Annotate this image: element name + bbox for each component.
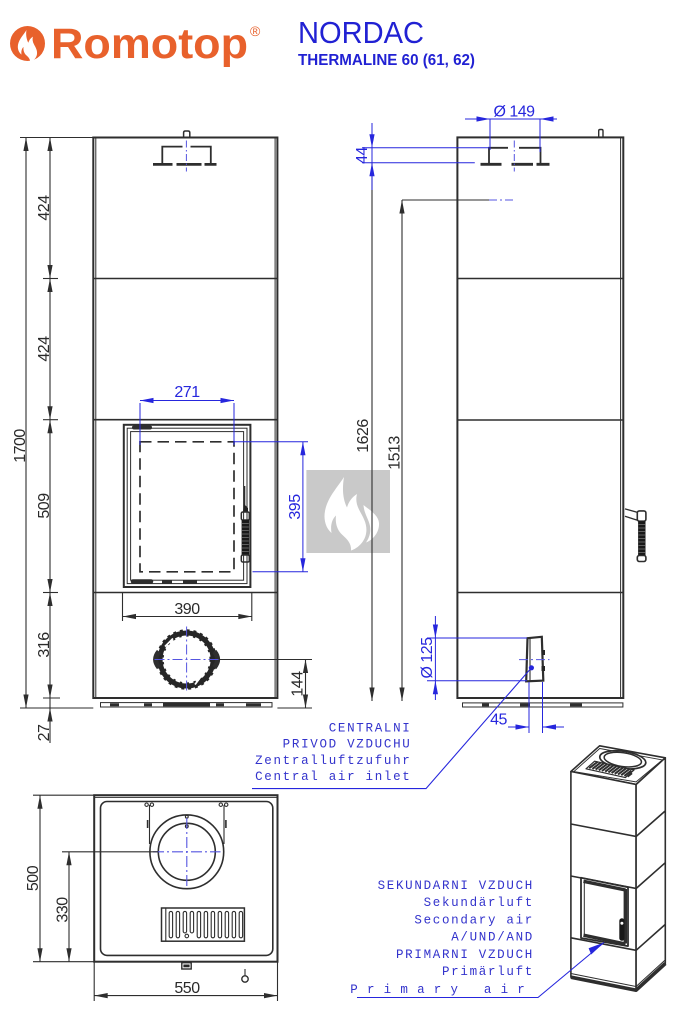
svg-text:316: 316 [36,632,53,658]
svg-text:1626: 1626 [355,419,372,453]
svg-text:395: 395 [287,494,304,520]
svg-text:330: 330 [54,897,71,923]
svg-text:45: 45 [490,712,507,729]
svg-text:SEKUNDARNI VZDUCH: SEKUNDARNI VZDUCH [378,879,534,893]
svg-text:424: 424 [36,336,53,362]
svg-text:CENTRALNI: CENTRALNI [329,722,412,736]
svg-text:271: 271 [174,384,200,401]
svg-text:Zentralluftzufuhr: Zentralluftzufuhr [255,754,411,768]
svg-text:PRIVOD VZDUCHU: PRIVOD VZDUCHU [283,737,412,751]
svg-text:424: 424 [36,195,53,221]
svg-text:Romotop: Romotop [51,20,248,68]
svg-text:Central air inlet: Central air inlet [255,770,411,784]
svg-text:®: ® [250,23,261,39]
svg-text:PRIMARNI VZDUCH: PRIMARNI VZDUCH [396,948,534,962]
svg-text:A/UND/AND: A/UND/AND [451,931,534,945]
svg-text:Secondary air: Secondary air [414,913,534,927]
svg-text:509: 509 [36,493,53,519]
svg-text:500: 500 [25,865,42,891]
svg-text:Primary air: Primary air [350,983,534,997]
svg-text:Ø 125: Ø 125 [419,637,436,679]
svg-text:44: 44 [354,147,371,164]
svg-text:27: 27 [36,724,53,741]
svg-text:Ø 149: Ø 149 [493,104,535,121]
svg-text:1513: 1513 [387,436,404,470]
svg-text:144: 144 [290,671,307,697]
svg-text:390: 390 [174,601,200,618]
svg-text:550: 550 [174,980,200,997]
svg-text:Primärluft: Primärluft [442,965,534,979]
svg-text:1700: 1700 [12,429,29,463]
svg-text:Sekundärluft: Sekundärluft [424,896,534,910]
svg-text:THERMALINE 60 (61, 62): THERMALINE 60 (61, 62) [298,52,475,69]
svg-text:NORDAC: NORDAC [298,15,424,50]
